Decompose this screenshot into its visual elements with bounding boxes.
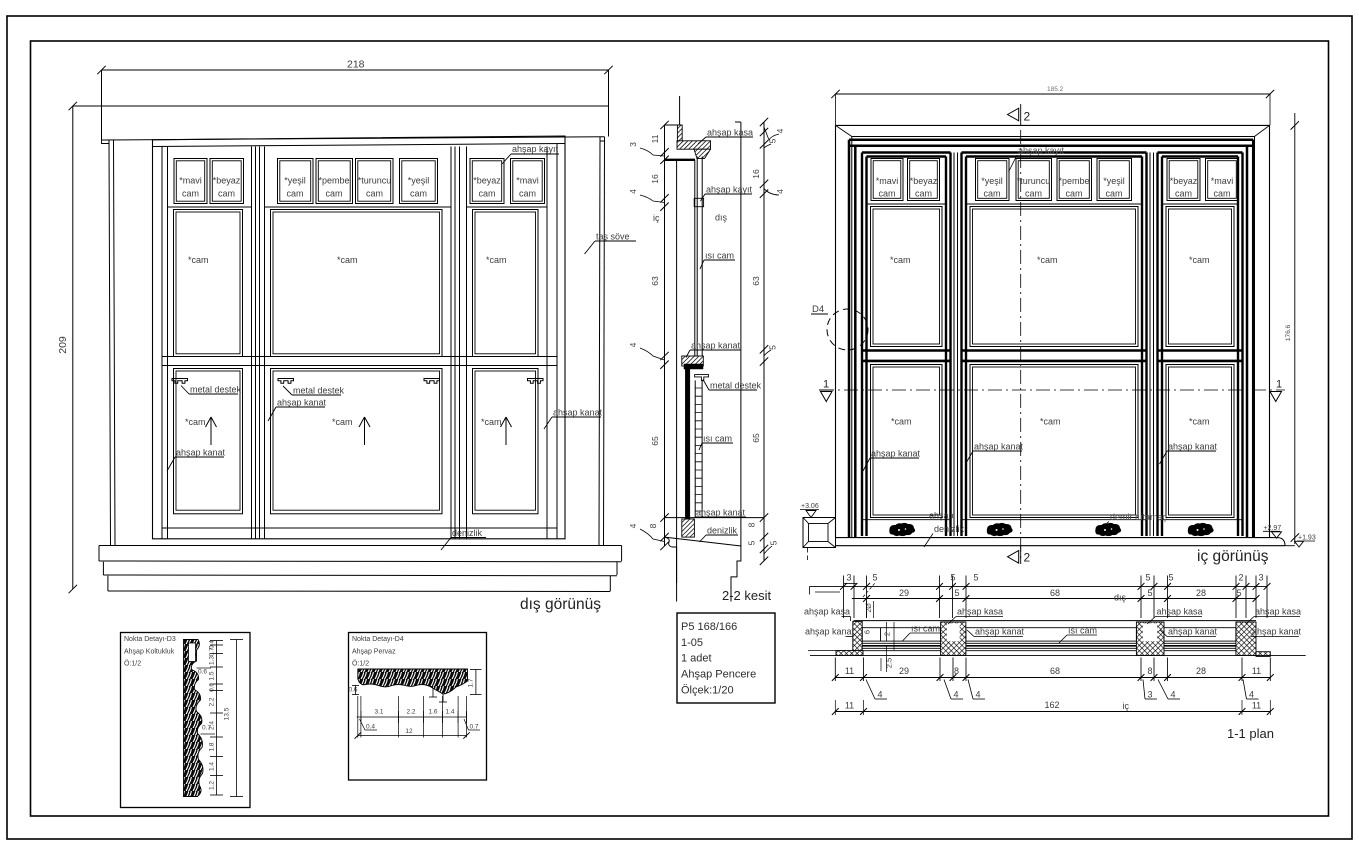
svg-text:4: 4 bbox=[1170, 690, 1175, 700]
svg-text:*cam: *cam bbox=[332, 417, 353, 427]
svg-text:*cam: *cam bbox=[1189, 255, 1210, 265]
svg-text:2: 2 bbox=[1024, 110, 1031, 124]
svg-text:cam: cam bbox=[325, 189, 342, 199]
svg-text:*yeşil: *yeşil bbox=[408, 176, 430, 186]
svg-text:ahşap kanat: ahşap kanat bbox=[975, 627, 1025, 637]
svg-text:3: 3 bbox=[1258, 573, 1263, 583]
svg-text:4: 4 bbox=[953, 690, 958, 700]
svg-text:*beyaz: *beyaz bbox=[473, 176, 501, 186]
svg-text:+3.06: +3.06 bbox=[801, 503, 819, 510]
svg-text:Ö:1/2: Ö:1/2 bbox=[352, 660, 369, 668]
svg-text:11: 11 bbox=[1252, 701, 1261, 711]
svg-text:1-1 plan: 1-1 plan bbox=[1227, 726, 1274, 741]
svg-text:iç görünüş: iç görünüş bbox=[1197, 548, 1269, 565]
svg-text:*mavi: *mavi bbox=[179, 176, 202, 186]
svg-text:3: 3 bbox=[846, 573, 851, 583]
svg-text:*beyaz: *beyaz bbox=[1170, 176, 1198, 186]
svg-text:11: 11 bbox=[650, 134, 660, 143]
svg-text:4: 4 bbox=[628, 189, 638, 194]
svg-text:2.2: 2.2 bbox=[406, 709, 415, 716]
svg-text:*cam: *cam bbox=[486, 255, 507, 265]
svg-text:176.6: 176.6 bbox=[1285, 324, 1292, 341]
svg-text:cam: cam bbox=[1065, 189, 1082, 199]
svg-text:68: 68 bbox=[1050, 588, 1060, 598]
svg-text:Nokta Detayı-D3: Nokta Detayı-D3 bbox=[124, 636, 176, 643]
svg-text:4: 4 bbox=[628, 342, 638, 347]
svg-text:68: 68 bbox=[1050, 666, 1060, 676]
svg-text:cam: cam bbox=[366, 189, 383, 199]
svg-text:*cam: *cam bbox=[188, 255, 209, 265]
svg-text:cam: cam bbox=[1105, 189, 1122, 199]
svg-text:0.6: 0.6 bbox=[349, 687, 358, 694]
svg-text:4: 4 bbox=[775, 128, 785, 133]
svg-text:2.2: 2.2 bbox=[209, 697, 216, 706]
svg-text:2: 2 bbox=[1238, 573, 1243, 583]
svg-text:dış: dış bbox=[1114, 593, 1127, 603]
svg-text:65: 65 bbox=[650, 436, 660, 446]
svg-text:+1.93: +1.93 bbox=[1298, 535, 1316, 542]
svg-text:ahşap kanat: ahşap kanat bbox=[974, 442, 1024, 452]
svg-text:ahşap kanat: ahşap kanat bbox=[1252, 627, 1302, 637]
svg-text:ahşap kanat: ahşap kanat bbox=[176, 448, 226, 458]
svg-text:*beyaz: *beyaz bbox=[213, 176, 241, 186]
svg-text:*mavi: *mavi bbox=[516, 176, 539, 186]
svg-text:iç: iç bbox=[653, 213, 660, 223]
svg-text:1: 1 bbox=[1276, 379, 1282, 391]
svg-text:ısı cam: ısı cam bbox=[1068, 626, 1097, 636]
svg-text:12: 12 bbox=[405, 728, 413, 735]
svg-text:5: 5 bbox=[747, 540, 757, 545]
svg-text:dış görünüş: dış görünüş bbox=[520, 596, 601, 613]
svg-text:3.1: 3.1 bbox=[374, 709, 383, 716]
svg-text:ahşap kanat: ahşap kanat bbox=[805, 627, 855, 637]
svg-text:P5 168/166: P5 168/166 bbox=[681, 621, 737, 633]
svg-text:1.8: 1.8 bbox=[209, 742, 216, 751]
svg-text:1: 1 bbox=[823, 379, 829, 391]
svg-text:demir tutamaç: demir tutamaç bbox=[1110, 512, 1168, 522]
svg-text:5: 5 bbox=[1236, 588, 1241, 598]
svg-text:2: 2 bbox=[1024, 551, 1031, 565]
svg-text:*cam: *cam bbox=[337, 255, 358, 265]
svg-text:0.7: 0.7 bbox=[202, 725, 211, 732]
svg-text:ahşap kasa: ahşap kasa bbox=[957, 607, 1003, 617]
svg-text:denizlik: denizlik bbox=[934, 524, 965, 534]
svg-text:ahşap kasa: ahşap kasa bbox=[804, 607, 850, 617]
svg-text:denizlik: denizlik bbox=[452, 528, 483, 538]
svg-text:2.5: 2.5 bbox=[885, 658, 894, 668]
svg-text:*cam: *cam bbox=[481, 417, 502, 427]
svg-text:cam: cam bbox=[286, 189, 303, 199]
svg-text:185.2: 185.2 bbox=[1047, 86, 1064, 93]
svg-text:5: 5 bbox=[1147, 588, 1152, 598]
svg-text:63: 63 bbox=[650, 276, 660, 286]
svg-text:0.7: 0.7 bbox=[470, 724, 479, 731]
svg-text:metal destek: metal destek bbox=[293, 386, 345, 396]
svg-text:1-05: 1-05 bbox=[681, 637, 703, 649]
svg-text:63: 63 bbox=[751, 276, 761, 286]
svg-text:Ö:1/2: Ö:1/2 bbox=[124, 660, 141, 668]
svg-text:cam: cam bbox=[478, 189, 495, 199]
svg-text:metal destek: metal destek bbox=[710, 381, 762, 391]
svg-text:5: 5 bbox=[973, 573, 978, 583]
svg-text:5: 5 bbox=[954, 588, 959, 598]
svg-text:cam: cam bbox=[1213, 189, 1230, 199]
svg-text:28: 28 bbox=[1196, 666, 1206, 676]
svg-text:2: 2 bbox=[883, 632, 892, 636]
svg-text:Nokta Detayı-D4: Nokta Detayı-D4 bbox=[352, 636, 404, 643]
svg-text:iç: iç bbox=[1123, 701, 1130, 711]
svg-text:*cam: *cam bbox=[890, 255, 911, 265]
svg-text:29: 29 bbox=[899, 588, 909, 598]
svg-text:13.5: 13.5 bbox=[224, 707, 231, 720]
svg-text:3: 3 bbox=[628, 142, 638, 147]
svg-text:ahşap kanat: ahşap kanat bbox=[691, 341, 741, 351]
svg-text:ahşap: ahşap bbox=[929, 511, 954, 521]
svg-text:ısı cam: ısı cam bbox=[703, 434, 732, 444]
svg-text:*cam: *cam bbox=[1189, 417, 1210, 427]
svg-text:1.5: 1.5 bbox=[209, 671, 216, 680]
svg-text:8: 8 bbox=[1147, 666, 1152, 676]
svg-text:5: 5 bbox=[1145, 573, 1150, 583]
svg-text:8: 8 bbox=[954, 666, 959, 676]
svg-text:dış: dış bbox=[715, 213, 728, 223]
svg-text:*yeşil: *yeşil bbox=[1103, 176, 1125, 186]
svg-text:28: 28 bbox=[1196, 588, 1206, 598]
svg-text:*beyaz: *beyaz bbox=[910, 176, 938, 186]
svg-text:*cam: *cam bbox=[1040, 417, 1061, 427]
svg-text:taş söve: taş söve bbox=[596, 232, 630, 242]
svg-text:5: 5 bbox=[769, 540, 779, 545]
svg-text:Ölçek:1/20: Ölçek:1/20 bbox=[681, 685, 734, 697]
svg-text:5: 5 bbox=[768, 345, 778, 350]
svg-text:1.4: 1.4 bbox=[445, 709, 454, 716]
svg-text:1.6: 1.6 bbox=[428, 709, 437, 716]
svg-text:16: 16 bbox=[751, 169, 761, 179]
svg-text:*mavi: *mavi bbox=[876, 176, 899, 186]
svg-text:ahşap kanat: ahşap kanat bbox=[696, 508, 746, 518]
svg-text:ısı cam: ısı cam bbox=[911, 624, 940, 634]
svg-text:cam: cam bbox=[1025, 189, 1042, 199]
svg-text:0.4: 0.4 bbox=[366, 724, 375, 731]
svg-text:cam: cam bbox=[983, 189, 1000, 199]
svg-text:5: 5 bbox=[872, 573, 877, 583]
svg-text:*turuncu: *turuncu bbox=[1017, 176, 1051, 186]
svg-text:ahşap kanat: ahşap kanat bbox=[1168, 627, 1218, 637]
svg-text:29: 29 bbox=[899, 666, 909, 676]
svg-text:1.3: 1.3 bbox=[209, 656, 216, 665]
svg-text:11: 11 bbox=[845, 701, 854, 711]
svg-text:D4: D4 bbox=[812, 304, 824, 315]
svg-text:65: 65 bbox=[751, 433, 761, 443]
svg-text:0.6: 0.6 bbox=[209, 683, 216, 692]
svg-text:*cam: *cam bbox=[1037, 255, 1058, 265]
svg-text:218: 218 bbox=[347, 59, 365, 71]
svg-text:1.7: 1.7 bbox=[468, 678, 475, 687]
svg-text:ahşap kanat: ahşap kanat bbox=[1168, 442, 1218, 452]
svg-text:ahşap kanat: ahşap kanat bbox=[277, 398, 327, 408]
svg-text:cam: cam bbox=[878, 189, 895, 199]
svg-text:5: 5 bbox=[768, 138, 778, 143]
svg-text:cam: cam bbox=[182, 189, 199, 199]
svg-text:8: 8 bbox=[648, 523, 658, 528]
svg-text:0.6: 0.6 bbox=[198, 669, 207, 676]
svg-text:3: 3 bbox=[1147, 690, 1152, 700]
svg-text:16: 16 bbox=[650, 174, 660, 184]
svg-text:Ahşap Koltukluk: Ahşap Koltukluk bbox=[124, 649, 175, 656]
svg-text:5: 5 bbox=[950, 573, 955, 583]
svg-text:4: 4 bbox=[975, 690, 980, 700]
svg-text:cam: cam bbox=[1175, 189, 1192, 199]
svg-text:ahşap kasa: ahşap kasa bbox=[707, 128, 753, 138]
svg-text:1.2: 1.2 bbox=[209, 781, 216, 790]
svg-text:8: 8 bbox=[747, 522, 757, 527]
svg-text:4: 4 bbox=[877, 690, 882, 700]
svg-text:ahşap kasa: ahşap kasa bbox=[1157, 607, 1203, 617]
svg-text:ahşap kasa: ahşap kasa bbox=[1255, 607, 1301, 617]
svg-text:209: 209 bbox=[57, 336, 69, 354]
svg-text:*cam: *cam bbox=[185, 417, 206, 427]
svg-text:ahşap kayıt: ahşap kayıt bbox=[1018, 146, 1065, 156]
svg-text:*pembe: *pembe bbox=[318, 176, 349, 186]
svg-text:ahşap kayıt: ahşap kayıt bbox=[706, 185, 753, 195]
svg-text:5: 5 bbox=[1168, 573, 1173, 583]
svg-text:ısı cam: ısı cam bbox=[705, 251, 734, 261]
svg-text:4: 4 bbox=[775, 189, 785, 194]
svg-text:1.4: 1.4 bbox=[209, 762, 216, 771]
svg-text:metal destek: metal destek bbox=[190, 385, 242, 395]
svg-text:*yeşil: *yeşil bbox=[981, 176, 1003, 186]
svg-text:2Ø: 2Ø bbox=[866, 603, 873, 613]
svg-text:*yeşil: *yeşil bbox=[284, 176, 306, 186]
svg-text:cam: cam bbox=[519, 189, 536, 199]
svg-text:ahşap kanat: ahşap kanat bbox=[871, 449, 921, 459]
svg-text:cam: cam bbox=[915, 189, 932, 199]
svg-text:ahşap kanat: ahşap kanat bbox=[553, 408, 603, 418]
svg-text:162: 162 bbox=[1044, 700, 1059, 710]
svg-text:Ahşap Pencere: Ahşap Pencere bbox=[681, 669, 756, 681]
svg-text:denizlik: denizlik bbox=[707, 526, 738, 536]
svg-text:4: 4 bbox=[1249, 690, 1254, 700]
svg-text:*pembe: *pembe bbox=[1058, 176, 1089, 186]
svg-text:*turuncu: *turuncu bbox=[358, 176, 392, 186]
svg-text:1 adet: 1 adet bbox=[681, 653, 712, 665]
svg-text:*cam: *cam bbox=[891, 417, 912, 427]
svg-text:Ahşap Pervaz: Ahşap Pervaz bbox=[352, 649, 396, 656]
svg-text:0.7: 0.7 bbox=[209, 647, 216, 656]
svg-text:*mavi: *mavi bbox=[1211, 176, 1234, 186]
svg-text:ahşap kayıt: ahşap kayıt bbox=[512, 144, 559, 154]
svg-text:6: 6 bbox=[863, 630, 872, 634]
svg-text:cam: cam bbox=[410, 189, 427, 199]
svg-text:0.4: 0.4 bbox=[209, 640, 216, 649]
svg-text:2-2 kesit: 2-2 kesit bbox=[722, 588, 772, 603]
svg-text:cam: cam bbox=[218, 189, 235, 199]
svg-text:4: 4 bbox=[628, 523, 638, 528]
svg-text:11: 11 bbox=[1252, 666, 1261, 676]
svg-text:11: 11 bbox=[845, 666, 854, 676]
